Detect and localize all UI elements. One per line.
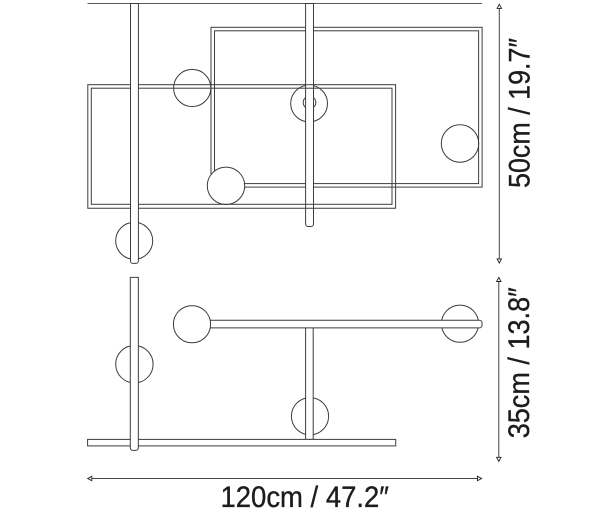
- svg-text:120cm / 47.2″: 120cm / 47.2″: [221, 481, 390, 510]
- svg-text:50cm / 19.7″: 50cm / 19.7″: [504, 38, 537, 188]
- svg-text:35cm / 13.8″: 35cm / 13.8″: [503, 287, 536, 438]
